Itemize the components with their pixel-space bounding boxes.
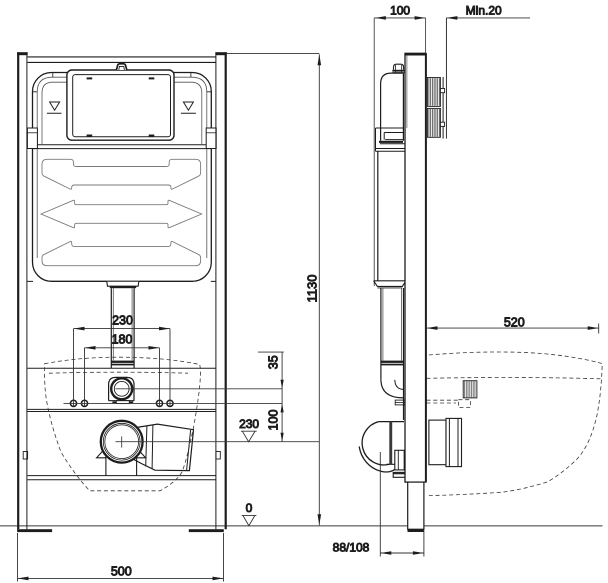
- svg-text:35: 35: [267, 355, 281, 369]
- svg-text:520: 520: [504, 315, 525, 329]
- svg-text:1130: 1130: [305, 275, 320, 303]
- svg-text:230: 230: [112, 314, 133, 328]
- svg-text:500: 500: [111, 565, 132, 579]
- svg-text:Min.20: Min.20: [466, 4, 502, 18]
- svg-text:100: 100: [390, 4, 410, 18]
- svg-text:88/108: 88/108: [333, 540, 370, 554]
- svg-text:180: 180: [112, 332, 133, 346]
- svg-text:100: 100: [267, 410, 281, 431]
- svg-text:230: 230: [239, 417, 259, 431]
- svg-text:0: 0: [246, 501, 253, 515]
